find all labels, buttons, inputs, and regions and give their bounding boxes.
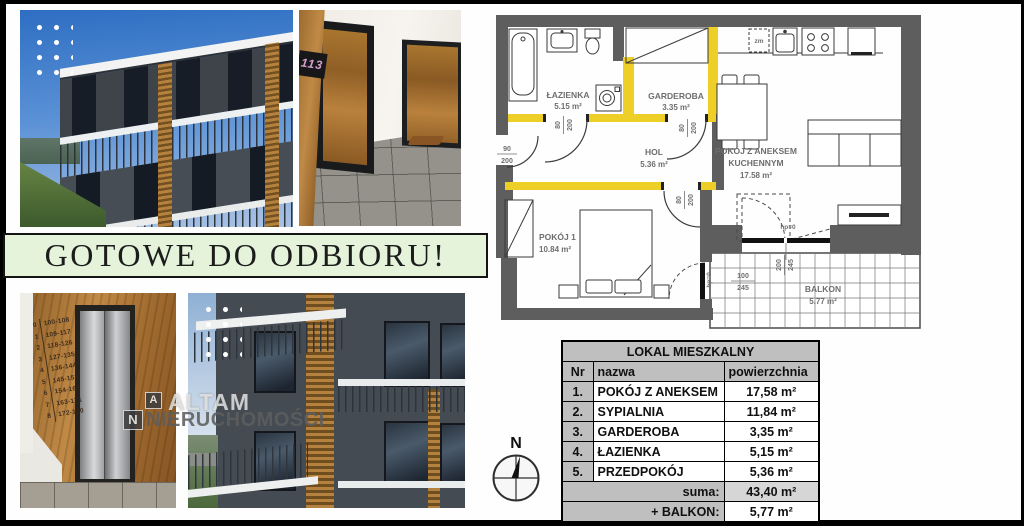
elevator-door-split [104,311,105,479]
door-number-plate: 113 [299,50,328,79]
dim-entrance: 90 200 [497,146,517,165]
col-header-name: nazwa [593,362,724,382]
room-area-lazienka: 5.15 m² [554,102,582,111]
row-area: 3,35 m² [724,422,819,442]
floor-plan: zm [493,8,925,330]
row-area: 5,15 m² [724,442,819,462]
room-label-pokoj1: POKÓJ 1 [539,231,576,242]
table-header-row: Nr nazwa powierzchnia [562,362,819,382]
sum-value: 43,40 m² [724,482,819,502]
dim-value: 90 [503,146,511,153]
row-area: 17,58 m² [724,382,819,402]
row-name: PRZEDPOKÓJ [593,462,724,482]
row-nr: 3. [562,422,593,442]
frame-border-top [0,0,1024,4]
row-nr: 5. [562,462,593,482]
balcony-label: + BALKON: [562,502,724,523]
apartment-door [323,29,367,166]
table-title: LOKAL MIESZKALNY [562,341,819,362]
doormat [408,136,445,145]
ready-banner: GOTOWE DO ODBIORU! [3,233,488,278]
row-area: 11,84 m² [724,402,819,422]
room-label-lazienka: ŁAZIENKA [547,90,590,100]
dim-value: 80 [676,196,683,204]
compass-north-label: N [510,435,522,452]
room-label-balkon: BALKON [805,284,841,294]
compass-rose: N [492,428,542,508]
table-balcony-row: + BALKON: 5,77 m² [562,502,819,523]
table-row: 5. PRZEDPOKÓJ 5,36 m² [562,462,819,482]
dim-value: 80 [555,121,562,129]
table-row: 2. SYPIALNIA 11,84 m² [562,402,819,422]
room-label-salon-2: KUCHENNYM [728,158,783,168]
col-header-nr: Nr [562,362,593,382]
room-area-pokoj1: 10.84 m² [539,245,571,254]
dim-bath-door: 80 200 [555,116,574,134]
dim-garderoba-door: 80 200 [679,119,698,137]
table-row: 4. ŁAZIENKA 5,15 m² [562,442,819,462]
row-nr: 1. [562,382,593,402]
sum-label: suma: [562,482,724,502]
dim-value: 100 [737,273,749,280]
window [384,321,430,387]
agency-logo-a: A [145,392,162,409]
dishwasher-label: zm [754,38,763,45]
room-area-table: LOKAL MIESZKALNY Nr nazwa powierzchnia 1… [561,340,820,523]
row-area: 5,36 m² [724,462,819,482]
room-area-balkon: 5.77 m² [809,297,837,306]
white-dots-decoration [29,18,73,76]
dim-value: 200 [567,119,574,131]
row-name: GARDEROBA [593,422,724,442]
frame-border-bottom [0,520,1024,526]
dim-value: 200 [776,259,783,271]
table-row: 1. POKÓJ Z ANEKSEM 17,58 m² [562,382,819,402]
bathroom-sink [547,29,577,52]
room-label-hol: HOL [645,147,663,157]
floor-level: 8 [43,410,53,423]
bathtub [509,29,537,101]
room-label-salon-1: POKÓJ Z ANEKSEM [715,145,797,156]
dim-value: 80 [679,124,686,132]
balcony-slab [338,379,465,386]
agency-logo-n: N [123,410,143,430]
dim-value: 245 [788,259,795,271]
bed [559,210,669,298]
listing-flyer: 113 GOTOWE DO ODBIORU! 0100-108 1109-117… [0,0,1024,526]
agency-watermark: A N ALTAM NIERUCHOMOŚCI [122,388,372,434]
wood-slat-accent [265,42,279,227]
table-title-row: LOKAL MIESZKALNY [562,341,819,362]
room-label-garderoba: GARDEROBA [648,91,704,101]
row-nr: 4. [562,442,593,462]
dim-value: 200 [688,194,695,206]
balcony-value: 5,77 m² [724,502,819,523]
hp-label-living: hp=0 [780,224,796,231]
window [384,421,430,487]
window [440,323,465,387]
dim-value: hp=0 [706,272,713,288]
table-sum-row: suma: 43,40 m² [562,482,819,502]
window [440,423,465,487]
agency-name-second-line: NIERUCHOMOŚCI [146,409,325,432]
washing-machine [596,85,621,111]
row-name: POKÓJ Z ANEKSEM [593,382,724,402]
dim-value: 200 [691,122,698,134]
kitchen-counter [718,28,883,55]
row-name: ŁAZIENKA [593,442,724,462]
dining-table [717,75,767,149]
col-header-area: powierzchnia [724,362,819,382]
apartment-door [407,45,458,144]
building-exterior-photo [20,10,293,227]
dim-value: 200 [501,158,513,165]
sofa [808,120,901,166]
white-wall-edge [20,293,33,453]
tiled-floor [20,482,176,508]
room-area-salon: 17.58 m² [740,171,772,180]
room-area-garderoba: 3.35 m² [662,103,690,112]
table-row: 3. GARDEROBA 3,35 m² [562,422,819,442]
dim-value: 245 [737,285,749,292]
hallway-photo: 113 [299,10,461,226]
hp-label-bedroom: hp=0 [706,272,713,288]
toilet [585,29,600,54]
building-facade [60,16,293,227]
wood-slat-accent [158,62,172,227]
balcony-slab [338,481,465,488]
tv-stand [838,205,901,225]
dim-pokoj-door: 80 200 [676,191,695,209]
room-area-hol: 5.36 m² [640,160,668,169]
row-name: SYPIALNIA [593,402,724,422]
row-nr: 2. [562,402,593,422]
wardrobe-closet [626,28,708,63]
bedroom-wardrobe [505,200,533,257]
white-dots-decoration [198,300,242,358]
